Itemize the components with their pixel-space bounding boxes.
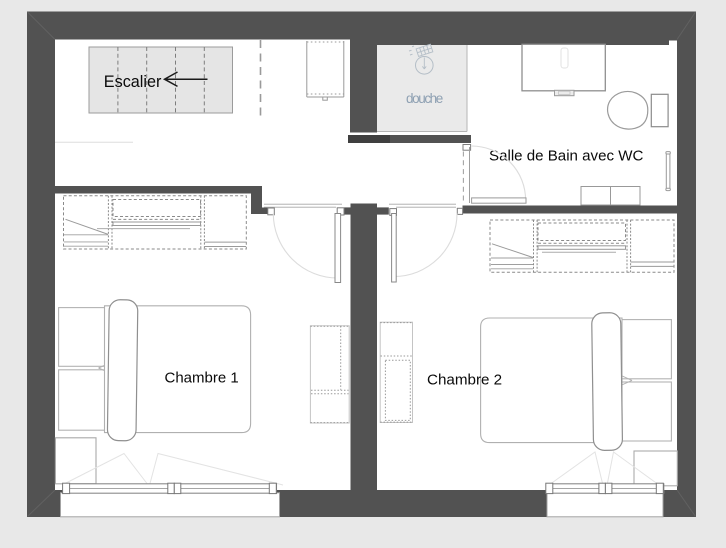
svg-text:Escalier: Escalier — [104, 73, 162, 91]
svg-text:douche: douche — [406, 91, 443, 106]
svg-text:Chambre 2: Chambre 2 — [427, 372, 502, 389]
svg-text:Chambre 1: Chambre 1 — [165, 370, 239, 387]
svg-text:Salle de Bain avec WC: Salle de Bain avec WC — [489, 147, 643, 164]
